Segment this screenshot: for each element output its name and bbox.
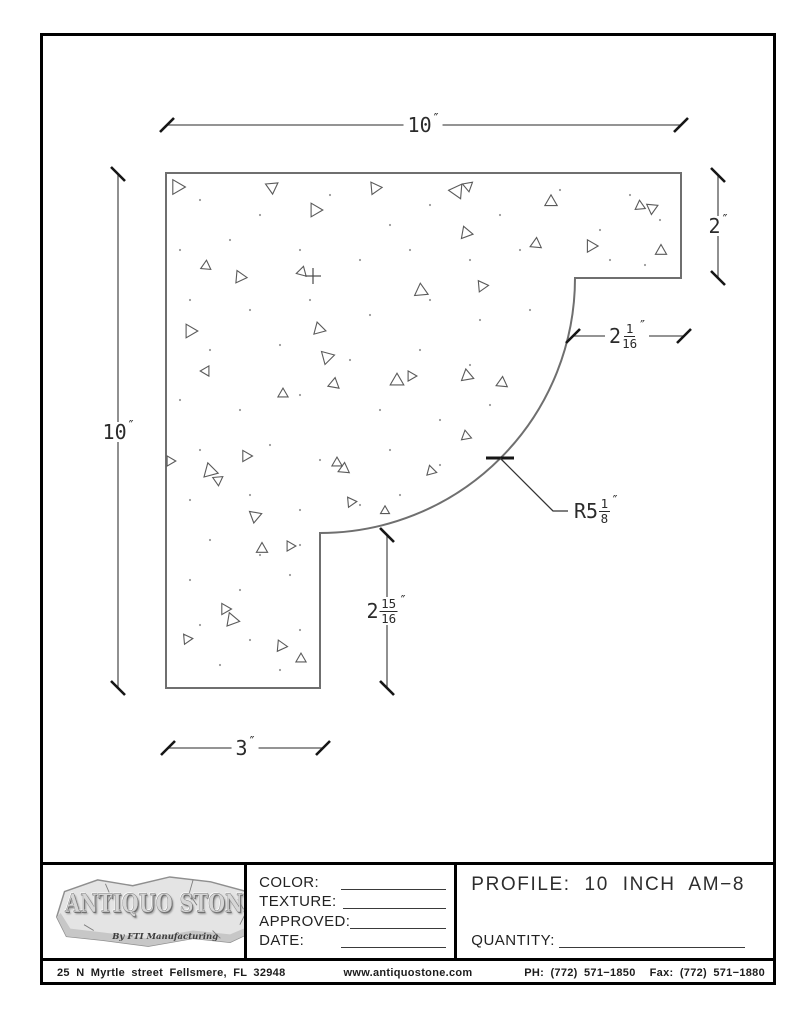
company-address: 25 N Myrtle street Fellsmere, FL 32948 bbox=[57, 967, 286, 979]
quantity-input-line[interactable] bbox=[559, 936, 745, 948]
approved-input-line[interactable] bbox=[350, 917, 446, 929]
dim-label-right-thickness: 2″ bbox=[705, 216, 732, 236]
field-texture: TEXTURE: bbox=[259, 894, 446, 909]
quantity-label: QUANTITY: bbox=[471, 933, 555, 948]
stone-profile-outline bbox=[166, 173, 681, 688]
field-quantity: QUANTITY: bbox=[471, 933, 745, 948]
radius-leader bbox=[486, 458, 568, 511]
company-logo: ANTIQUO STONE By FTI Manufacturing bbox=[43, 865, 247, 958]
profile-drawing-svg bbox=[43, 36, 773, 982]
fax-number: Fax: (772) 571−1880 bbox=[650, 967, 765, 979]
field-color: COLOR: bbox=[259, 875, 446, 890]
dim-label-bottom-width: 3″ bbox=[232, 738, 259, 758]
date-label: DATE: bbox=[259, 933, 335, 948]
page-border: 10″ 10″ 2″ 2116″ 21516″ 3″ R518″ bbox=[40, 33, 776, 985]
field-approved: APPROVED: bbox=[259, 914, 446, 929]
texture-input-line[interactable] bbox=[343, 897, 447, 909]
dim-label-step-height: 21516″ bbox=[363, 597, 410, 625]
company-phone-fax: PH: (772) 571−1850Fax: (772) 571−1880 bbox=[524, 967, 765, 979]
dim-label-left-height: 10″ bbox=[99, 422, 138, 442]
approved-label: APPROVED: bbox=[259, 914, 350, 929]
dim-label-notch-width: 2116″ bbox=[605, 322, 649, 350]
dim-label-top-width: 10″ bbox=[404, 115, 443, 135]
company-website[interactable]: www.antiquostone.com bbox=[343, 967, 472, 979]
field-date: DATE: bbox=[259, 933, 446, 948]
profile-title: PROFILE: 10 INCH AM−8 bbox=[471, 874, 745, 896]
texture-label: TEXTURE: bbox=[259, 894, 336, 909]
phone-number: PH: (772) 571−1850 bbox=[524, 967, 635, 979]
date-input-line[interactable] bbox=[341, 936, 446, 948]
footer-bar: 25 N Myrtle street Fellsmere, FL 32948 w… bbox=[43, 958, 773, 985]
color-input-line[interactable] bbox=[341, 878, 446, 890]
color-label: COLOR: bbox=[259, 875, 335, 890]
logo-subtitle: By FTI Manufacturing bbox=[112, 932, 218, 942]
dim-label-radius: R518″ bbox=[570, 497, 621, 525]
profile-cell: PROFILE: 10 INCH AM−8 QUANTITY: bbox=[457, 865, 773, 958]
logo-title: ANTIQUO STONE bbox=[65, 889, 222, 918]
title-block: ANTIQUO STONE By FTI Manufacturing COLOR… bbox=[43, 862, 773, 958]
approval-fields: COLOR: TEXTURE: APPROVED: DATE: bbox=[247, 865, 457, 958]
